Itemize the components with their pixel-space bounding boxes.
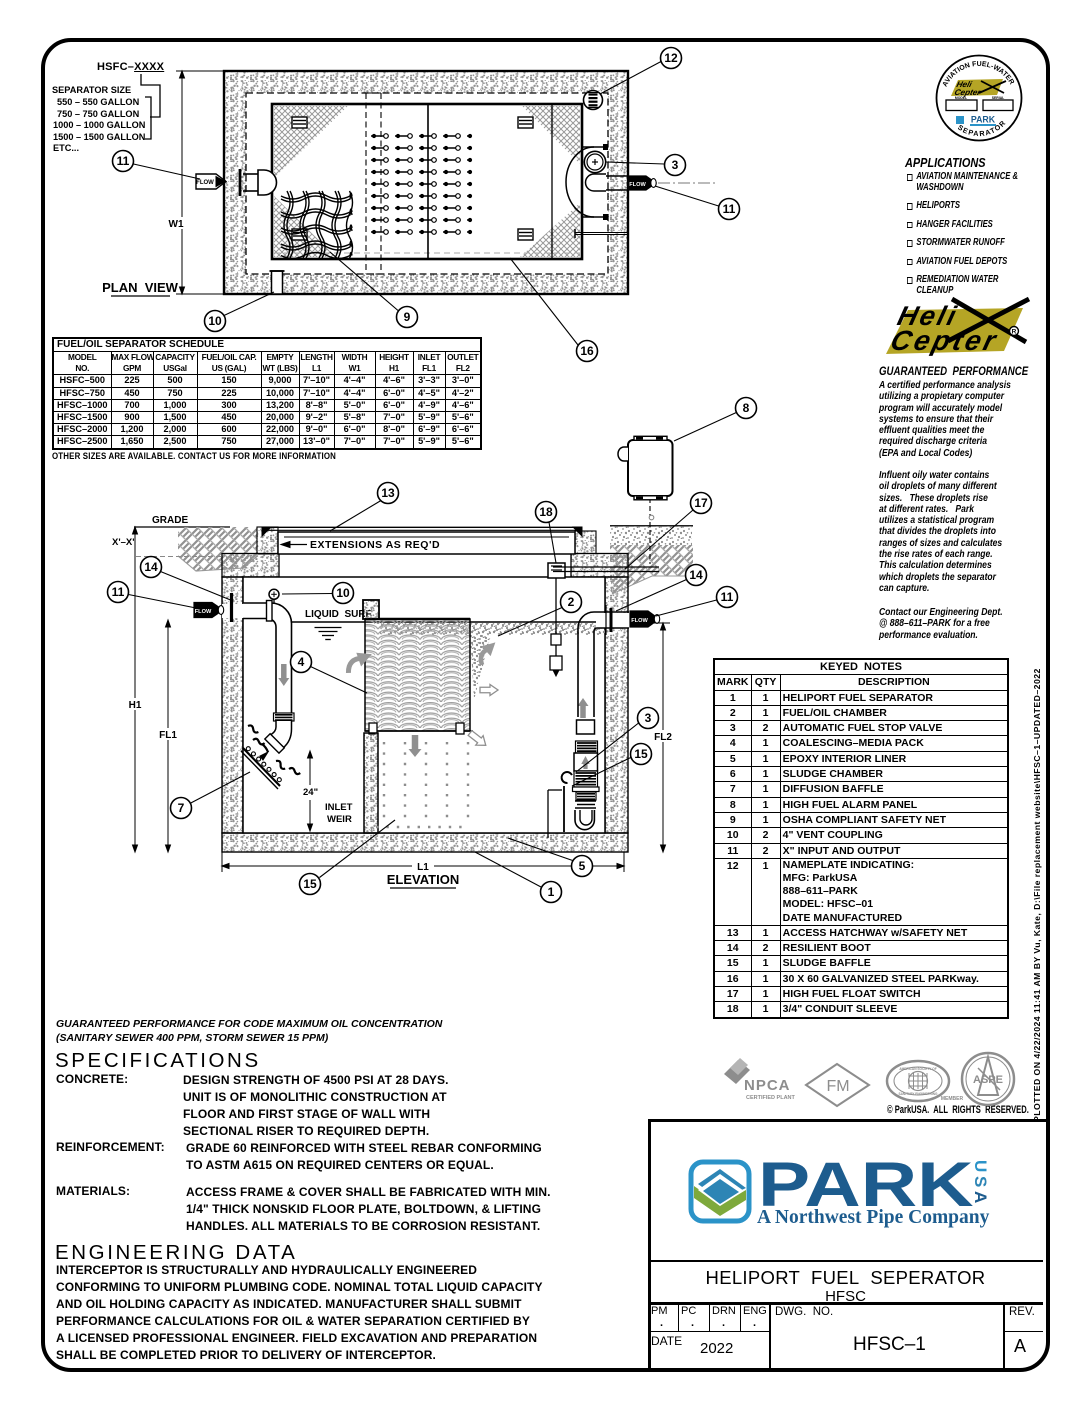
- svg-text:11: 11: [112, 585, 125, 599]
- svg-text:ASPE: ASPE: [973, 1074, 1003, 1086]
- svg-text:12: 12: [664, 51, 678, 65]
- svg-text:GRADE: GRADE: [152, 515, 188, 526]
- svg-text:H1: H1: [129, 700, 142, 711]
- svg-text:16: 16: [580, 344, 594, 358]
- svg-text:17: 17: [694, 496, 708, 510]
- svg-text:FL1: FL1: [159, 730, 177, 741]
- svg-text:11: 11: [721, 590, 734, 604]
- svg-text:LIQUID SURF: LIQUID SURF: [305, 609, 372, 620]
- svg-text:4: 4: [298, 655, 305, 669]
- svg-text:R: R: [1012, 329, 1017, 336]
- svg-text:8: 8: [743, 401, 750, 415]
- svg-text:WEIR: WEIR: [327, 814, 352, 825]
- svg-text:X'–X': X'–X': [112, 537, 134, 548]
- svg-text:NPCA: NPCA: [744, 1077, 791, 1094]
- svg-text:10: 10: [336, 586, 350, 600]
- svg-text:Cepter: Cepter: [887, 325, 1002, 357]
- svg-text:AMERICAN SOCIETY OF: AMERICAN SOCIETY OF: [899, 1067, 936, 1071]
- svg-text:MEMBER: MEMBER: [941, 1096, 964, 1102]
- svg-text:FM: FM: [826, 1078, 849, 1095]
- svg-text:15: 15: [634, 747, 648, 761]
- svg-text:10: 10: [208, 314, 222, 328]
- svg-text:2: 2: [568, 595, 575, 609]
- svg-text:S: S: [971, 1176, 990, 1187]
- svg-text:W1: W1: [169, 219, 184, 230]
- svg-text:14: 14: [689, 568, 703, 582]
- svg-text:SERIAL: SERIAL: [992, 96, 1004, 100]
- svg-text:FLOW: FLOW: [629, 182, 646, 188]
- svg-text:7: 7: [178, 801, 185, 815]
- svg-text:13: 13: [381, 486, 395, 500]
- svg-text:14: 14: [144, 560, 158, 574]
- svg-text:24": 24": [303, 787, 318, 798]
- svg-text:5: 5: [579, 859, 586, 873]
- svg-text:FLOW: FLOW: [196, 180, 214, 186]
- svg-text:3: 3: [672, 158, 679, 172]
- svg-text:3: 3: [645, 711, 652, 725]
- svg-text:11: 11: [117, 154, 130, 168]
- svg-text:A: A: [971, 1191, 990, 1203]
- svg-text:CERTIFIED PLANT: CERTIFIED PLANT: [746, 1095, 796, 1101]
- svg-text:PARK: PARK: [971, 115, 996, 125]
- svg-text:FL2: FL2: [654, 732, 672, 743]
- svg-text:18: 18: [539, 505, 553, 519]
- svg-text:15: 15: [303, 877, 317, 891]
- svg-text:FLOW: FLOW: [195, 609, 212, 615]
- svg-text:11: 11: [723, 202, 736, 216]
- svg-text:1: 1: [548, 885, 555, 899]
- svg-text:ELEVATION: ELEVATION: [387, 872, 459, 887]
- svg-text:MODEL: MODEL: [955, 96, 967, 100]
- svg-text:EXTENSIONS AS REQ'D: EXTENSIONS AS REQ'D: [310, 539, 440, 551]
- svg-text:9: 9: [404, 310, 411, 324]
- svg-text:SANITARY ENGINEERING: SANITARY ENGINEERING: [898, 1092, 938, 1096]
- svg-text:A Northwest Pipe Company: A Northwest Pipe Company: [757, 1207, 990, 1228]
- svg-text:U: U: [971, 1160, 990, 1174]
- svg-text:PLAN VIEW: PLAN VIEW: [102, 280, 179, 295]
- svg-text:INLET: INLET: [325, 802, 353, 813]
